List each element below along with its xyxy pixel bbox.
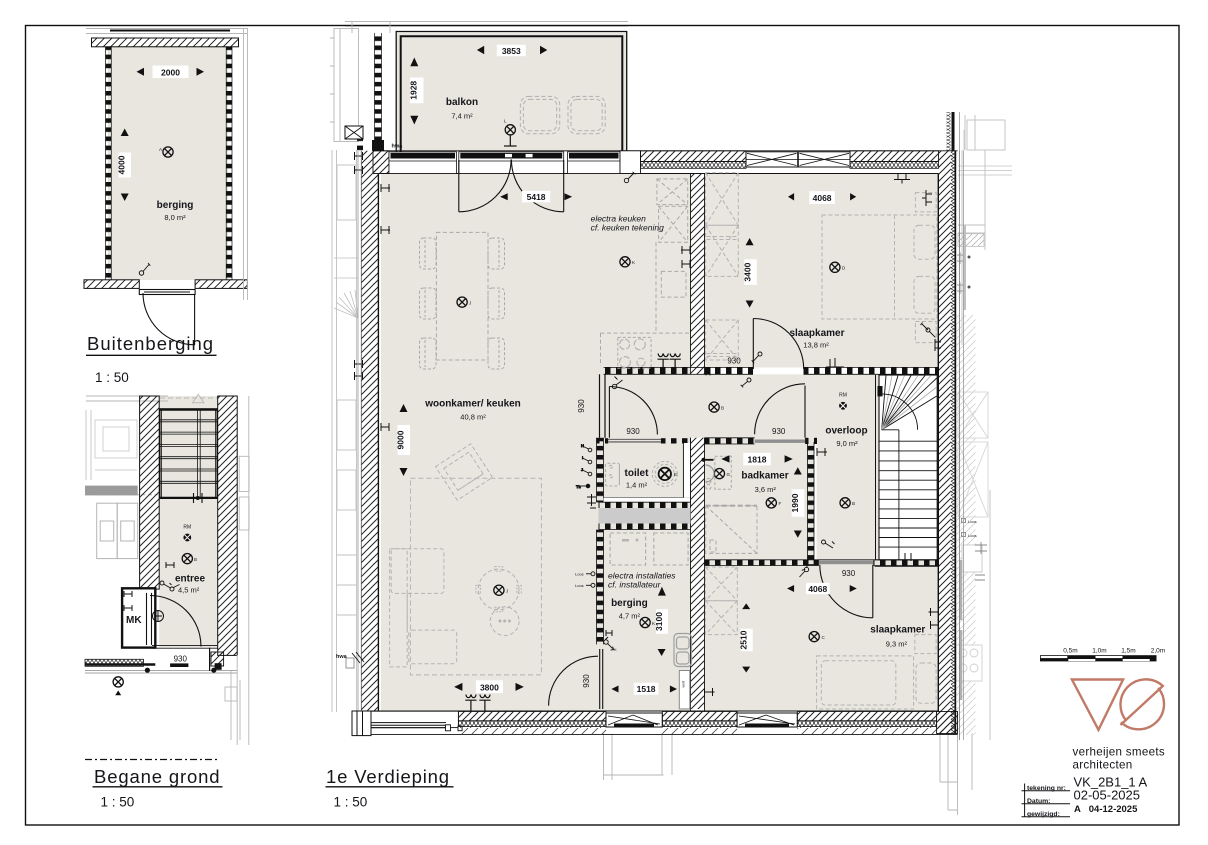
svg-text:1,4 m²: 1,4 m² (626, 481, 648, 490)
svg-text:Loos: Loos (968, 533, 977, 538)
svg-text:3,6 m²: 3,6 m² (755, 485, 777, 494)
svg-text:1 : 50: 1 : 50 (101, 795, 135, 810)
svg-text:1,5m: 1,5m (1121, 648, 1135, 655)
svg-text:A: A (159, 147, 162, 152)
svg-text:930: 930 (577, 399, 586, 413)
svg-text:1990: 1990 (790, 493, 800, 512)
svg-text:930: 930 (174, 655, 188, 664)
svg-text:1518: 1518 (637, 684, 656, 694)
svg-text:I: I (582, 455, 583, 460)
svg-text:cf. installateur: cf. installateur (608, 580, 662, 590)
svg-text:J: J (469, 301, 471, 306)
svg-text:3853: 3853 (502, 46, 521, 56)
svg-text:930: 930 (772, 427, 786, 436)
svg-text:verheijen smeets: verheijen smeets (1073, 746, 1165, 759)
svg-text:vent: vent (682, 681, 686, 688)
svg-text:930: 930 (582, 674, 591, 688)
svg-text:RM: RM (183, 525, 191, 531)
svg-text:4000: 4000 (117, 155, 127, 174)
svg-text:B: B (721, 406, 724, 411)
svg-text:balkon: balkon (446, 97, 478, 108)
svg-text:1 : 50: 1 : 50 (95, 370, 129, 385)
svg-text:930: 930 (626, 427, 640, 436)
svg-text:E: E (674, 472, 677, 477)
svg-text:13,8 m²: 13,8 m² (803, 341, 829, 350)
svg-text:3800: 3800 (480, 682, 499, 692)
svg-text:4,5 m²: 4,5 m² (178, 586, 200, 595)
svg-text:A 04-12-2025: A 04-12-2025 (1074, 804, 1138, 815)
svg-text:7,4 m²: 7,4 m² (451, 112, 473, 121)
svg-text:J: J (581, 467, 583, 472)
svg-text:Loos: Loos (968, 519, 977, 524)
svg-text:slaapkamer: slaapkamer (789, 328, 844, 339)
svg-text:RM: RM (839, 393, 847, 399)
svg-text:4068: 4068 (813, 193, 832, 203)
svg-text:Begane grond: Begane grond (94, 766, 221, 787)
svg-text:slaapkamer: slaapkamer (870, 625, 925, 636)
svg-text:4,7 m²: 4,7 m² (619, 612, 641, 621)
svg-text:1928: 1928 (409, 81, 419, 100)
svg-text:3400: 3400 (743, 262, 753, 281)
svg-text:2000: 2000 (161, 67, 180, 77)
svg-text:02-05-2025: 02-05-2025 (1074, 788, 1141, 803)
svg-text:Loos: Loos (575, 572, 584, 577)
svg-text:9,0 m²: 9,0 m² (836, 439, 858, 448)
svg-text:K: K (614, 647, 617, 652)
svg-text:8,0 m²: 8,0 m² (164, 213, 186, 222)
svg-text:Th: Th (576, 484, 581, 489)
svg-text:hwa: hwa (392, 144, 404, 150)
svg-text:MK: MK (126, 615, 142, 626)
svg-text:9,3 m²: 9,3 m² (886, 640, 908, 649)
svg-text:architecten: architecten (1073, 759, 1133, 772)
svg-text:gewijzigd:: gewijzigd: (1027, 811, 1060, 818)
svg-text:F: F (779, 501, 782, 506)
svg-text:toilet: toilet (625, 468, 650, 479)
svg-text:berging: berging (611, 598, 648, 609)
svg-text:40,8 m²: 40,8 m² (460, 413, 486, 422)
svg-text:Datum:: Datum: (1027, 798, 1050, 805)
svg-text:entree: entree (175, 574, 205, 585)
svg-text:B: B (852, 501, 855, 506)
svg-text:cf. keuken tekening: cf. keuken tekening (591, 223, 665, 233)
svg-text:woonkamer/ keuken: woonkamer/ keuken (424, 399, 521, 410)
svg-text:0,5m: 0,5m (1063, 648, 1077, 655)
svg-text:2,0m: 2,0m (1151, 648, 1165, 655)
svg-text:J: J (506, 589, 508, 594)
svg-text:1818: 1818 (748, 455, 767, 465)
svg-text:9000: 9000 (396, 430, 406, 449)
svg-text:5418: 5418 (527, 192, 546, 202)
svg-text:badkamer: badkamer (741, 471, 788, 482)
svg-text:930: 930 (842, 569, 856, 578)
svg-text:1 : 50: 1 : 50 (334, 795, 368, 810)
svg-text:tekening nr:: tekening nr: (1027, 785, 1066, 792)
svg-text:B: B (194, 557, 197, 562)
svg-text:2510: 2510 (739, 630, 749, 649)
svg-text:3100: 3100 (654, 612, 664, 631)
svg-text:1e Verdieping: 1e Verdieping (326, 766, 450, 787)
svg-text:Loos: Loos (575, 583, 584, 588)
svg-text:H: H (581, 443, 584, 448)
svg-text:overloop: overloop (825, 426, 867, 437)
svg-text:berging: berging (157, 200, 194, 211)
svg-text:K: K (632, 260, 635, 265)
svg-text:930: 930 (727, 357, 741, 366)
svg-text:G: G (727, 472, 731, 477)
svg-text:4068: 4068 (808, 584, 827, 594)
svg-text:1,0m: 1,0m (1092, 648, 1106, 655)
svg-text:hwa: hwa (336, 654, 348, 660)
